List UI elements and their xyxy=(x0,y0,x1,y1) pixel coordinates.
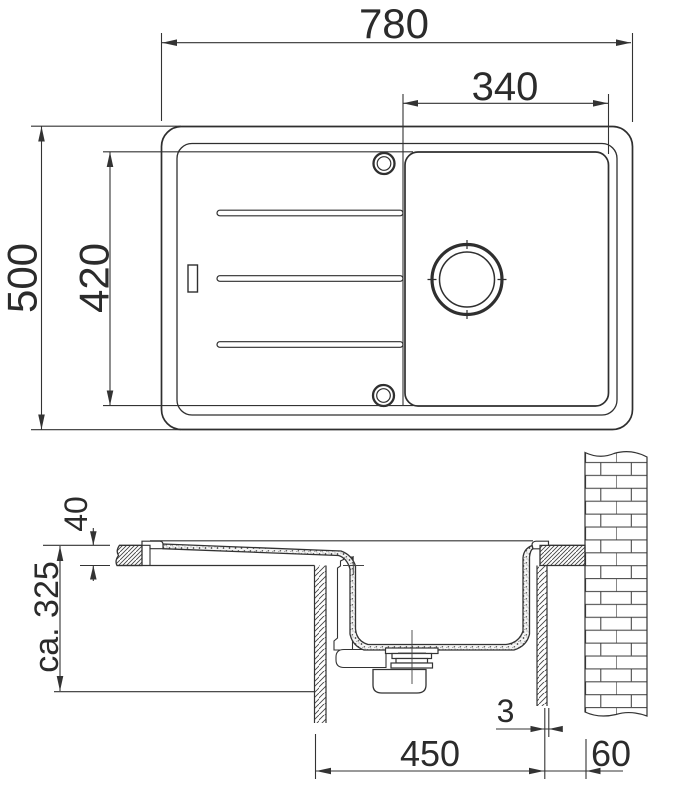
drain-circle xyxy=(428,240,507,319)
sink-technical-drawing: 780 340 500 420 xyxy=(0,0,678,811)
dim-450 xyxy=(316,708,624,779)
tap-hole-top xyxy=(374,153,395,174)
dim-3-label: 3 xyxy=(497,693,515,729)
plan-dimensions: 780 340 500 420 xyxy=(0,0,632,430)
siphon-cup xyxy=(373,670,426,694)
wall-brick xyxy=(583,448,649,720)
sink-outer-outline xyxy=(162,127,633,430)
dim-340 xyxy=(403,94,609,405)
dim-40-label: 40 xyxy=(58,496,94,532)
rim-lip-left xyxy=(142,541,163,549)
tap-hole-bottom xyxy=(373,385,394,406)
dim-450-label: 450 xyxy=(400,733,460,774)
dim-780-label: 780 xyxy=(359,0,429,47)
overflow-pipe xyxy=(336,650,386,668)
groove xyxy=(217,210,403,216)
dim-60-label: 60 xyxy=(591,733,631,774)
sink-inner-rim xyxy=(177,144,617,416)
dim-340-label: 340 xyxy=(472,65,539,109)
plan-view xyxy=(162,127,633,430)
dim-420 xyxy=(103,152,413,406)
drainer-grooves xyxy=(217,210,403,347)
dim-420-label: 420 xyxy=(71,243,118,313)
overflow-slot xyxy=(188,265,198,292)
drawing-sheet: 780 340 500 420 xyxy=(0,0,678,811)
dim-500-label: 500 xyxy=(0,243,46,313)
groove xyxy=(217,276,403,282)
cabinet-panel-right xyxy=(537,566,547,707)
cabinet-panel-left xyxy=(315,566,327,724)
groove xyxy=(217,342,403,348)
countertop-right xyxy=(540,545,585,565)
dim-ca325-label: ca. 325 xyxy=(28,561,66,673)
section-view xyxy=(116,448,649,723)
